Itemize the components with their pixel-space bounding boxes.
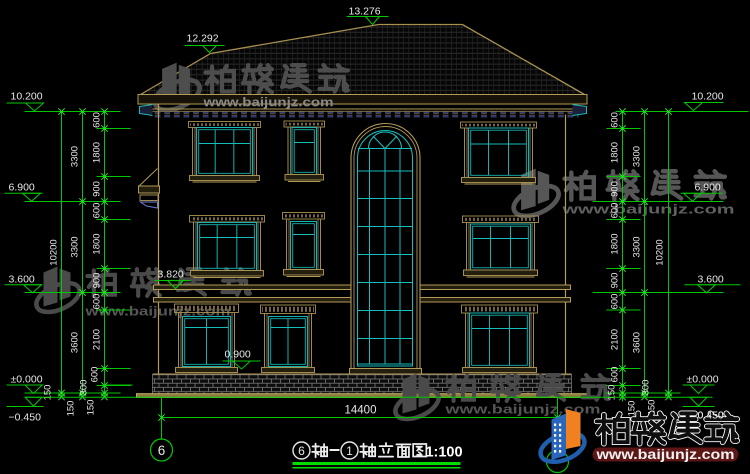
svg-text:13.276: 13.276 <box>349 6 381 18</box>
svg-text:www.baijunjz.com: www.baijunjz.com <box>561 202 735 217</box>
svg-text:±0.000: ±0.000 <box>687 374 719 386</box>
svg-text:0.900: 0.900 <box>225 349 251 361</box>
svg-text:−0.450: −0.450 <box>9 412 42 424</box>
svg-text:10.200: 10.200 <box>692 91 724 103</box>
svg-text:6: 6 <box>298 444 305 458</box>
svg-text:3300: 3300 <box>70 236 81 257</box>
svg-text:900: 900 <box>610 273 621 289</box>
svg-text:3300: 3300 <box>70 146 81 167</box>
svg-text:600: 600 <box>92 294 103 310</box>
svg-text:1800: 1800 <box>610 233 621 254</box>
svg-text:10200: 10200 <box>49 239 60 265</box>
svg-text:150: 150 <box>86 400 97 416</box>
svg-text:12.292: 12.292 <box>187 33 219 45</box>
svg-text:www.baijunjz.com: www.baijunjz.com <box>202 95 333 109</box>
svg-text:600: 600 <box>90 367 101 383</box>
svg-text:±0.000: ±0.000 <box>11 374 43 386</box>
svg-text:6.900: 6.900 <box>695 182 721 194</box>
svg-text:300: 300 <box>641 380 652 396</box>
svg-text:6.900: 6.900 <box>9 182 35 194</box>
svg-text:900: 900 <box>92 273 103 289</box>
svg-text:600: 600 <box>610 112 621 128</box>
svg-text:0.450: 0.450 <box>698 410 724 422</box>
svg-text:2100: 2100 <box>610 329 621 350</box>
svg-text:600: 600 <box>92 112 103 128</box>
svg-text:3300: 3300 <box>632 146 643 167</box>
svg-text:3.820: 3.820 <box>158 269 184 281</box>
svg-text:150: 150 <box>607 385 618 401</box>
svg-text:www.baijunjz.com: www.baijunjz.com <box>595 447 734 462</box>
svg-text:600: 600 <box>610 294 621 310</box>
svg-text:1:100: 1:100 <box>425 445 462 461</box>
svg-text:3300: 3300 <box>632 236 643 257</box>
svg-text:6: 6 <box>158 443 166 458</box>
svg-text:3.600: 3.600 <box>698 274 724 286</box>
svg-text:600: 600 <box>92 203 103 219</box>
svg-text:300: 300 <box>79 380 90 396</box>
svg-text:10.200: 10.200 <box>11 91 43 103</box>
svg-text:900: 900 <box>610 181 621 197</box>
svg-text:600: 600 <box>610 367 621 383</box>
svg-text:3600: 3600 <box>632 332 643 353</box>
svg-text:1800: 1800 <box>610 142 621 163</box>
svg-text:150: 150 <box>66 401 77 417</box>
svg-text:1800: 1800 <box>92 142 103 163</box>
svg-text:150: 150 <box>43 385 54 401</box>
svg-text:600: 600 <box>610 203 621 219</box>
svg-text:1800: 1800 <box>92 233 103 254</box>
svg-text:900: 900 <box>92 181 103 197</box>
svg-text:10200: 10200 <box>655 239 666 265</box>
svg-text:14400: 14400 <box>345 405 377 417</box>
svg-text:3600: 3600 <box>70 332 81 353</box>
svg-text:2100: 2100 <box>92 329 103 350</box>
svg-text:1: 1 <box>346 444 353 458</box>
svg-text:3.600: 3.600 <box>9 274 35 286</box>
